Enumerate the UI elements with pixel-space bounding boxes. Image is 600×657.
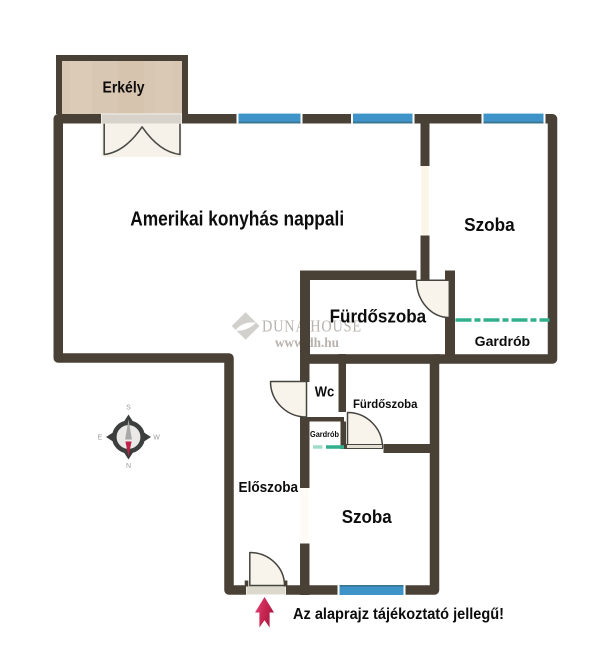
svg-text:Gardrób: Gardrób [310, 430, 339, 439]
svg-text:Erkély: Erkély [103, 80, 145, 97]
svg-text:Wc: Wc [315, 384, 335, 400]
svg-text:Amerikai konyhás nappali: Amerikai konyhás nappali [130, 209, 344, 231]
svg-text:Az alaprajz tájékoztató jelleg: Az alaprajz tájékoztató jellegű! [293, 606, 504, 623]
svg-text:Gardrób: Gardrób [475, 333, 531, 349]
svg-text:Fürdőszoba: Fürdőszoba [330, 307, 427, 327]
svg-text:E: E [98, 435, 103, 442]
svg-text:Fürdőszoba: Fürdőszoba [353, 397, 418, 411]
svg-text:W: W [153, 435, 160, 442]
svg-text:N: N [126, 463, 131, 470]
svg-text:Szoba: Szoba [342, 507, 393, 527]
svg-text:Előszoba: Előszoba [239, 480, 299, 496]
svg-text:Szoba: Szoba [464, 215, 515, 235]
svg-text:S: S [126, 405, 131, 412]
